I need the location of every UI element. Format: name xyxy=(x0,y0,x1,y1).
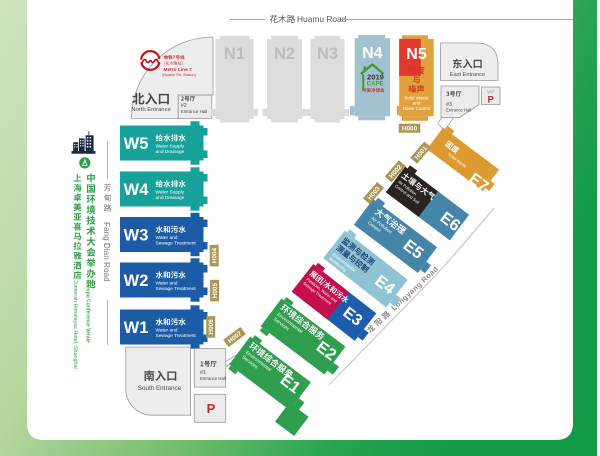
svg-text:Metro Line 7: Metro Line 7 xyxy=(164,67,193,73)
svg-text:N2: N2 xyxy=(274,45,295,63)
svg-text:Water and: Water and xyxy=(156,235,178,241)
svg-text:Noise Control: Noise Control xyxy=(403,106,431,111)
svg-text:W4: W4 xyxy=(124,181,150,199)
svg-text:and: and xyxy=(413,101,421,106)
svg-text:Sewage Treatment: Sewage Treatment xyxy=(156,286,197,292)
svg-text:Huamu Road: Huamu Road xyxy=(297,14,347,24)
svg-text:H006: H006 xyxy=(208,319,215,335)
svg-text:IE expo Conference Venue: IE expo Conference Venue xyxy=(85,280,91,343)
svg-text:N5: N5 xyxy=(406,46,427,63)
svg-text:W1: W1 xyxy=(124,319,149,337)
svg-text:Water Supply: Water Supply xyxy=(156,189,185,195)
svg-text:Sewage Treatment: Sewage Treatment xyxy=(156,333,197,339)
svg-text:Entrance Hall: Entrance Hall xyxy=(181,109,207,114)
svg-text:N1: N1 xyxy=(224,45,245,63)
svg-text:Entrance Hall: Entrance Hall xyxy=(200,376,226,381)
svg-text:Water Supply: Water Supply xyxy=(156,143,185,149)
svg-text:South Entrance: South Entrance xyxy=(138,385,182,392)
svg-text:Solid Waste: Solid Waste xyxy=(404,95,429,100)
svg-text:Water and: Water and xyxy=(156,280,178,286)
svg-text:East Entrance: East Entrance xyxy=(450,72,485,78)
svg-text:P: P xyxy=(488,95,495,106)
svg-text:N4: N4 xyxy=(362,45,383,62)
svg-text:W3: W3 xyxy=(124,227,149,245)
svg-text:and Drainage: and Drainage xyxy=(156,149,185,155)
svg-text:H004: H004 xyxy=(212,248,219,264)
svg-text:W2: W2 xyxy=(124,272,149,290)
svg-text:P: P xyxy=(207,401,216,416)
svg-text:North Entrance: North Entrance xyxy=(131,107,171,113)
svg-text:CAPE: CAPE xyxy=(367,82,384,88)
svg-text:H005: H005 xyxy=(212,283,219,299)
svg-text:H000: H000 xyxy=(402,126,418,133)
svg-text:N3: N3 xyxy=(317,45,338,63)
svg-text:2019: 2019 xyxy=(367,72,384,81)
svg-text:Water and: Water and xyxy=(156,327,178,333)
svg-text:Jumeirah Himalayas Hotel, Shan: Jumeirah Himalayas Hotel, Shanghai xyxy=(72,280,78,369)
svg-text:and Drainage: and Drainage xyxy=(156,195,185,201)
svg-text:W5: W5 xyxy=(124,135,149,153)
svg-text:Sewage Treatment: Sewage Treatment xyxy=(156,241,197,247)
svg-text:Entrance Hall: Entrance Hall xyxy=(446,107,471,112)
svg-text:Fang Dian Road: Fang Dian Road xyxy=(102,222,111,282)
svg-text:(Huamu Rd. Station): (Huamu Rd. Station) xyxy=(162,73,196,77)
